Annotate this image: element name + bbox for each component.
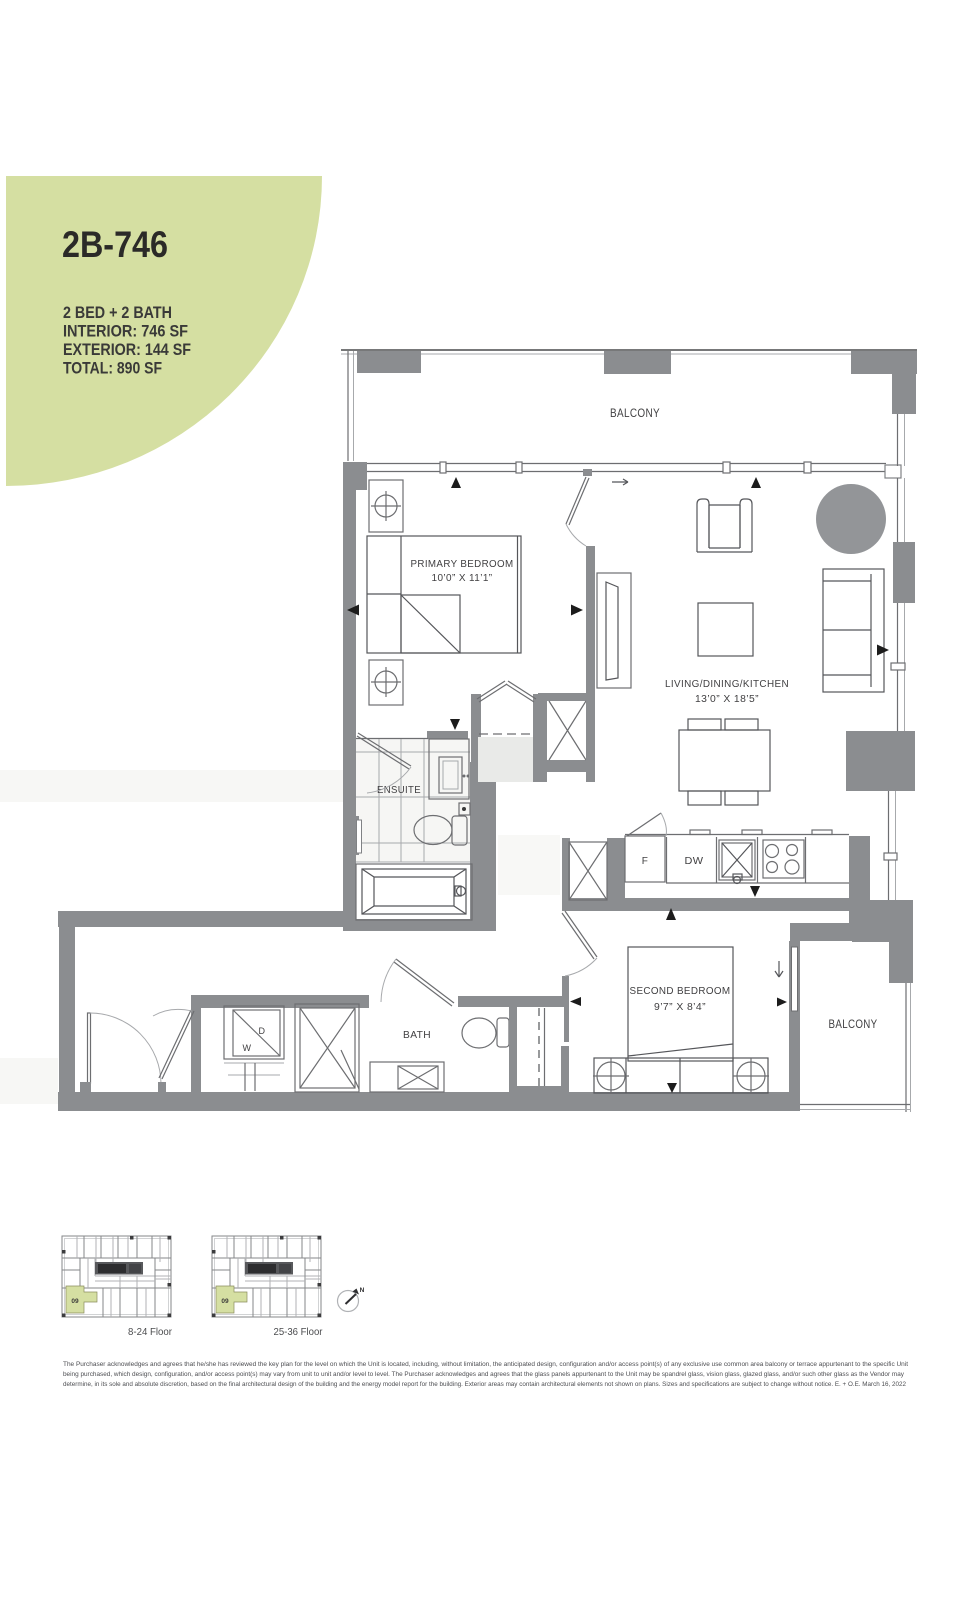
svg-text:D: D [259, 1026, 266, 1036]
svg-text:INTERIOR: 746 SF: INTERIOR: 746 SF [63, 323, 188, 341]
svg-text:F: F [642, 856, 649, 867]
svg-text:EXTERIOR: 144 SF: EXTERIOR: 144 SF [63, 341, 191, 359]
svg-text:determine, in its sole and abs: determine, in its sole and absolute disc… [63, 1381, 906, 1388]
svg-text:TOTAL: 890 SF: TOTAL: 890 SF [63, 360, 162, 378]
svg-text:BALCONY: BALCONY [829, 1019, 878, 1031]
svg-text:The Purchaser acknowledges and: The Purchaser acknowledges and agrees th… [63, 1361, 908, 1368]
svg-text:2B-746: 2B-746 [62, 224, 168, 265]
svg-text:ENSUITE: ENSUITE [377, 784, 421, 796]
svg-text:10’0” X 11’1”: 10’0” X 11’1” [432, 573, 493, 584]
svg-text:8-24 Floor: 8-24 Floor [128, 1326, 172, 1338]
svg-text:W: W [243, 1043, 252, 1053]
svg-text:PRIMARY BEDROOM: PRIMARY BEDROOM [411, 558, 514, 570]
svg-text:BALCONY: BALCONY [610, 408, 660, 420]
svg-text:DW: DW [685, 856, 704, 867]
svg-text:LIVING/DINING/KITCHEN: LIVING/DINING/KITCHEN [665, 678, 789, 690]
svg-text:13’0” X 18’5”: 13’0” X 18’5” [695, 694, 759, 705]
svg-text:2 BED + 2 BATH: 2 BED + 2 BATH [63, 304, 172, 322]
svg-text:25-36 Floor: 25-36 Floor [274, 1326, 323, 1338]
svg-text:N: N [360, 1287, 365, 1294]
svg-text:9’7” X 8’4”: 9’7” X 8’4” [654, 1002, 706, 1013]
svg-text:SECOND BEDROOM: SECOND BEDROOM [630, 985, 731, 997]
svg-text:being purchased, which design,: being purchased, which design, configura… [63, 1371, 905, 1378]
svg-text:BATH: BATH [403, 1029, 431, 1041]
svg-text:09: 09 [71, 1298, 79, 1305]
